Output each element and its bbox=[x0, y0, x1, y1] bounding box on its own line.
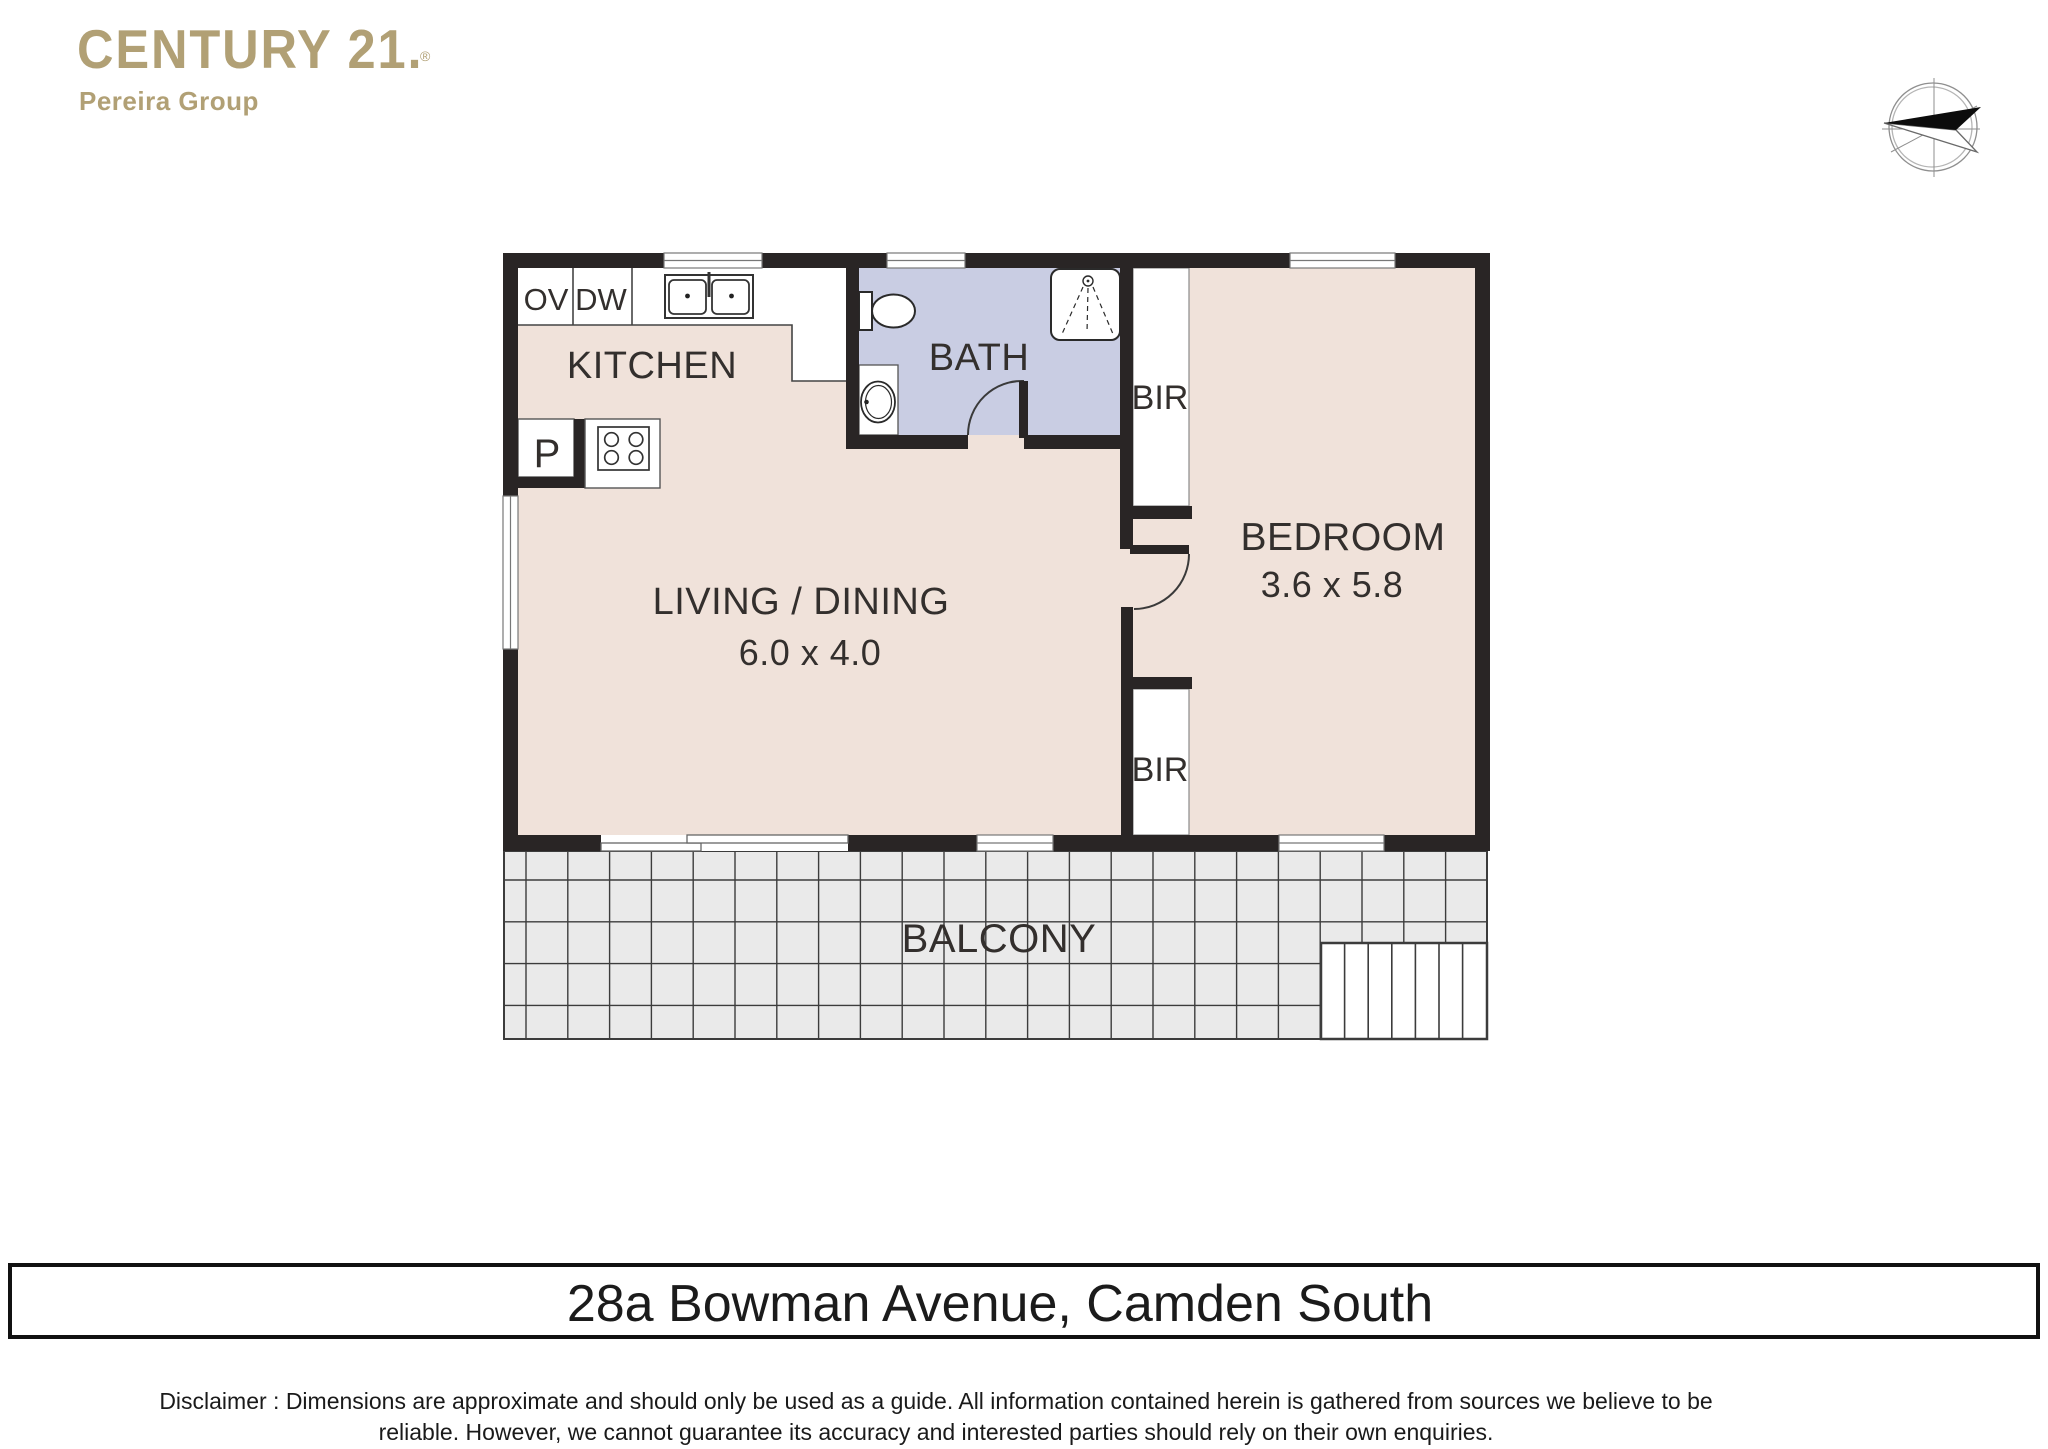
svg-text:DW: DW bbox=[575, 282, 627, 317]
svg-text:LIVING / DINING: LIVING / DINING bbox=[653, 581, 950, 623]
svg-text:P: P bbox=[534, 432, 561, 476]
svg-text:KITCHEN: KITCHEN bbox=[567, 345, 737, 387]
svg-text:6.0 x 4.0: 6.0 x 4.0 bbox=[739, 632, 882, 673]
svg-text:BALCONY: BALCONY bbox=[902, 917, 1097, 961]
svg-text:BIR: BIR bbox=[1132, 379, 1189, 417]
svg-text:OV: OV bbox=[524, 282, 569, 317]
svg-text:3.6 x 5.8: 3.6 x 5.8 bbox=[1261, 564, 1404, 605]
svg-text:BATH: BATH bbox=[929, 337, 1030, 379]
svg-text:BEDROOM: BEDROOM bbox=[1240, 516, 1445, 559]
svg-text:BIR: BIR bbox=[1132, 751, 1189, 789]
